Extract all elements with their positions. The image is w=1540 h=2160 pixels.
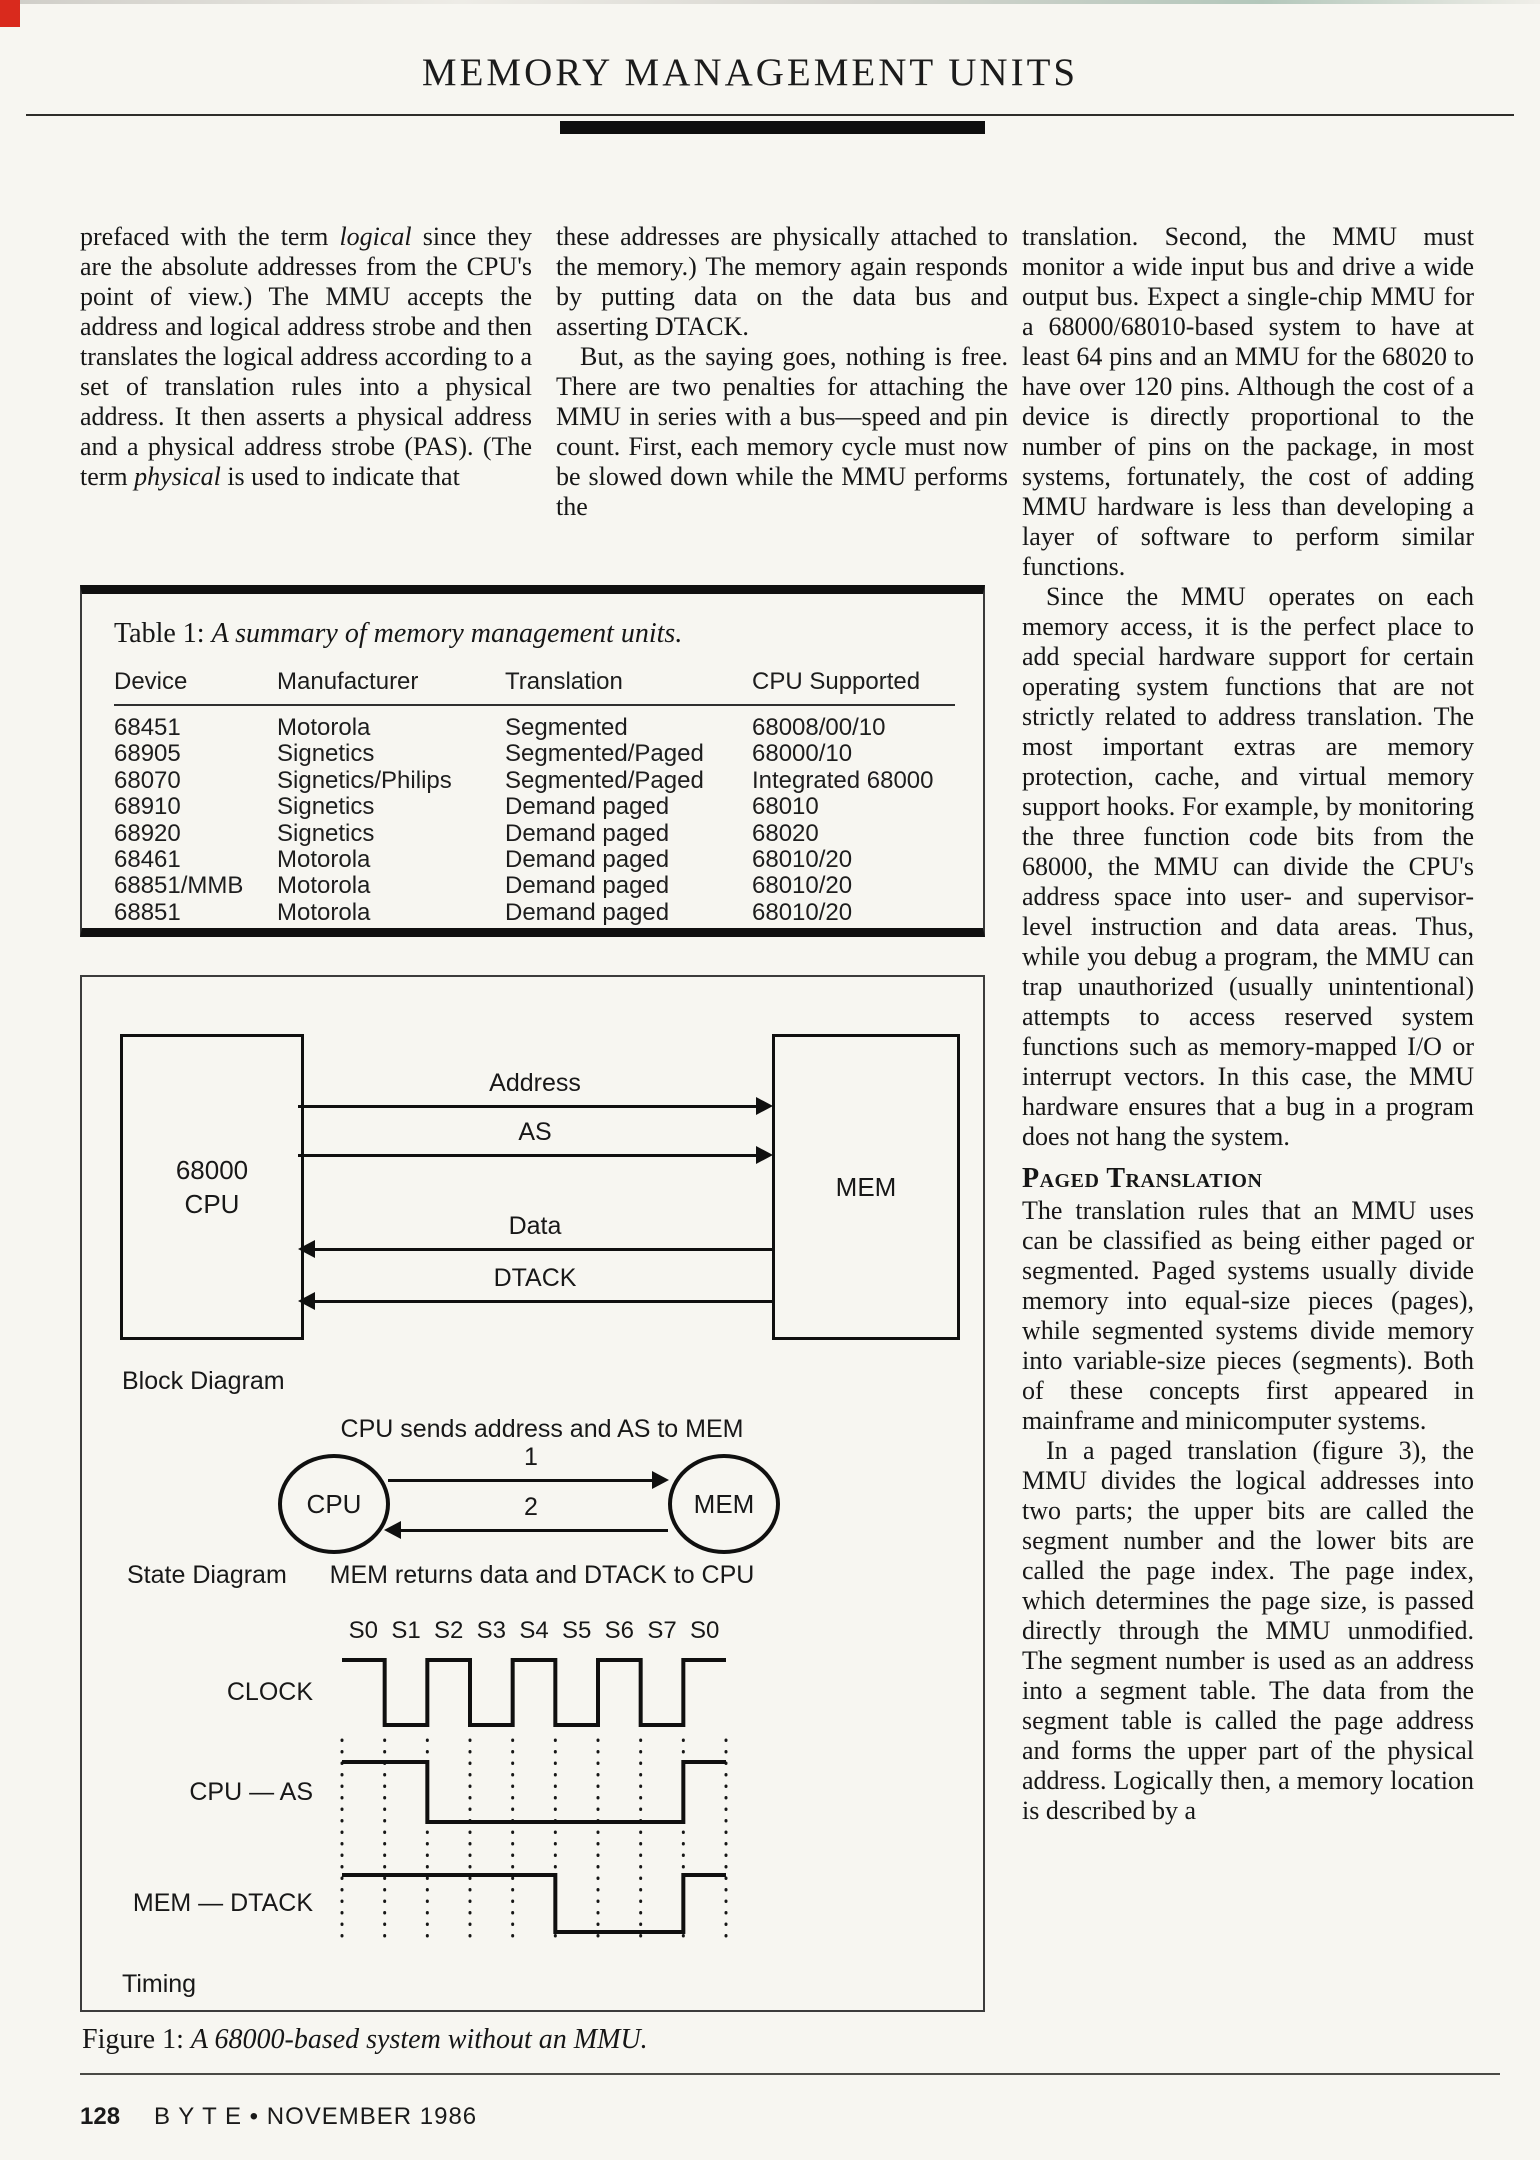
column-header-device: Device: [114, 668, 277, 696]
figure1-caption: Figure 1: A 68000-based system without a…: [82, 2024, 648, 2056]
signal-line-as: [298, 1154, 758, 1157]
magazine-name-date: B Y T E • NOVEMBER 1986: [154, 2103, 477, 2130]
cpu-label-line2: CPU: [185, 1187, 240, 1221]
block-cpu-box: 68000 CPU: [120, 1034, 304, 1340]
column-header-manufacturer: Manufacturer: [277, 668, 505, 696]
figure1-caption-italic: A 68000-based system without an MMU.: [191, 2024, 648, 2055]
italic-term: logical: [339, 222, 411, 251]
block-mem-box: MEM: [772, 1034, 960, 1340]
body-paragraph: translation. Second, the MMU must monito…: [1022, 222, 1474, 582]
table-row: 68910SigneticsDemand paged68010: [114, 794, 953, 820]
text-column-1: prefaced with the term logical since the…: [80, 222, 532, 492]
signal-label-dtack: DTACK: [494, 1264, 577, 1293]
timing-label: Timing: [122, 1970, 196, 1999]
table-cell: Segmented: [505, 715, 752, 741]
state-arrow2-line: [400, 1529, 668, 1532]
column-header-cpu-supported: CPU Supported: [752, 668, 953, 696]
body-paragraph: In a paged translation (figure 3), the M…: [1022, 1436, 1474, 1826]
timing-waveforms: [322, 1645, 742, 1955]
table-cell: Demand paged: [505, 873, 752, 899]
timing-waveform: [342, 1762, 726, 1822]
body-paragraph: The translation rules that an MMU uses c…: [1022, 1196, 1474, 1436]
column-header-translation: Translation: [505, 668, 752, 696]
header-rule: [26, 114, 1514, 116]
body-text: since they are the absolute addresses fr…: [80, 222, 532, 491]
page-title: MEMORY MANAGEMENT UNITS: [0, 50, 1500, 95]
table-cell: Signetics: [277, 821, 505, 847]
signal-label-address: Address: [489, 1069, 581, 1098]
table-cell: 68010/20: [752, 847, 953, 873]
table-cell: 68461: [114, 847, 277, 873]
footer-rule: [80, 2073, 1500, 2075]
table1-title-prefix: Table 1:: [114, 618, 212, 649]
timing-state-label: S4: [519, 1617, 548, 1645]
arrowhead-right-icon: [756, 1097, 773, 1115]
table-cell: Motorola: [277, 873, 505, 899]
magazine-page: MEMORY MANAGEMENT UNITS prefaced with th…: [0, 0, 1540, 2160]
table-cell: 68000/10: [752, 741, 953, 767]
timing-label-cpu-as: CPU — AS: [189, 1778, 313, 1807]
state-cpu-node: CPU: [278, 1454, 390, 1554]
timing-state-label: S5: [562, 1617, 591, 1645]
timing-state-label: S3: [477, 1617, 506, 1645]
table-cell: Motorola: [277, 847, 505, 873]
table-cell: Motorola: [277, 715, 505, 741]
timing-state-label: S7: [647, 1617, 676, 1645]
body-text: prefaced with the term: [80, 222, 339, 251]
table-cell: 68451: [114, 715, 277, 741]
figure1-caption-prefix: Figure 1:: [82, 2024, 191, 2055]
timing-state-label: S0: [349, 1617, 378, 1645]
timing-label-mem-dtack: MEM — DTACK: [133, 1889, 313, 1918]
arrowhead-right-icon: [652, 1471, 669, 1489]
table-cell: 68008/00/10: [752, 715, 953, 741]
table-row: 68905SigneticsSegmented/Paged68000/10: [114, 741, 953, 767]
page-number: 128: [80, 2103, 120, 2130]
table-cell: 68070: [114, 768, 277, 794]
text-column-2: these addresses are physically attached …: [556, 222, 1008, 522]
text-column-3: translation. Second, the MMU must monito…: [1022, 222, 1474, 1826]
state-mem-label: MEM: [694, 1489, 755, 1520]
state-top-caption: CPU sends address and AS to MEM: [341, 1415, 744, 1444]
table-cell: Integrated 68000: [752, 768, 953, 794]
arrowhead-right-icon: [756, 1146, 773, 1164]
scan-artifact-red-corner: [0, 0, 20, 27]
table-cell: 68851/MMB: [114, 873, 277, 899]
body-paragraph: But, as the saying goes, nothing is free…: [556, 342, 1008, 522]
table-cell: Signetics: [277, 794, 505, 820]
col1-paragraph: prefaced with the term logical since the…: [80, 222, 532, 492]
table-row: 68851MotorolaDemand paged68010/20: [114, 900, 953, 926]
table1-header-rule: [114, 704, 955, 706]
page-footer: 128B Y T E • NOVEMBER 1986: [80, 2103, 477, 2131]
table-cell: 68010: [752, 794, 953, 820]
table-cell: Signetics/Philips: [277, 768, 505, 794]
section-heading: Paged Translation: [1022, 1164, 1474, 1194]
table-cell: Demand paged: [505, 794, 752, 820]
timing-state-label: S1: [391, 1617, 420, 1645]
timing-waveform: [342, 1660, 726, 1725]
cpu-label-line1: 68000: [176, 1153, 248, 1187]
signal-label-data: Data: [509, 1212, 562, 1241]
state-mem-node: MEM: [668, 1454, 780, 1554]
timing-state-label: S6: [605, 1617, 634, 1645]
table-cell: 68905: [114, 741, 277, 767]
signal-line-dtack: [314, 1300, 772, 1303]
arrowhead-left-icon: [298, 1240, 315, 1258]
state-arrow1-label: 1: [524, 1443, 538, 1472]
body-text: is used to indicate that: [221, 462, 460, 491]
italic-term: physical: [134, 462, 221, 491]
state-cpu-label: CPU: [307, 1489, 362, 1520]
table-row: 68920SigneticsDemand paged68020: [114, 821, 953, 847]
mem-label: MEM: [836, 1170, 897, 1204]
state-diagram-label: State Diagram: [127, 1561, 287, 1590]
table-cell: 68910: [114, 794, 277, 820]
table1-box: Table 1: A summary of memory management …: [80, 585, 985, 937]
block-diagram-label: Block Diagram: [122, 1367, 285, 1396]
table-cell: 68920: [114, 821, 277, 847]
timing-state-label: S2: [434, 1617, 463, 1645]
table-cell: Signetics: [277, 741, 505, 767]
table1-header-row: Device Manufacturer Translation CPU Supp…: [114, 668, 953, 696]
table-cell: Demand paged: [505, 821, 752, 847]
timing-state-label: S0: [690, 1617, 719, 1645]
signal-line-data: [314, 1248, 772, 1251]
scan-artifact: [0, 0, 1540, 4]
state-arrow1-line: [388, 1479, 654, 1482]
table-cell: 68010/20: [752, 900, 953, 926]
state-arrow2-label: 2: [524, 1493, 538, 1522]
arrowhead-left-icon: [384, 1521, 401, 1539]
table-cell: Motorola: [277, 900, 505, 926]
table-cell: Demand paged: [505, 900, 752, 926]
timing-label-clock: CLOCK: [227, 1678, 313, 1707]
table-cell: 68010/20: [752, 873, 953, 899]
table1-title: Table 1: A summary of memory management …: [114, 618, 682, 650]
table-row: 68461MotorolaDemand paged68010/20: [114, 847, 953, 873]
table-row: 68851/MMBMotorolaDemand paged68010/20: [114, 873, 953, 899]
figure1-box: 68000 CPU MEM Address AS Data DTACK Bloc…: [80, 975, 985, 2012]
table-row: 68070Signetics/PhilipsSegmented/PagedInt…: [114, 768, 953, 794]
signal-label-as: AS: [518, 1118, 551, 1147]
table-row: 68451MotorolaSegmented68008/00/10: [114, 715, 953, 741]
arrowhead-left-icon: [298, 1292, 315, 1310]
table-cell: 68851: [114, 900, 277, 926]
table-body: 68451MotorolaSegmented68008/00/1068905Si…: [114, 715, 953, 926]
table1-title-italic: A summary of memory management units.: [212, 618, 683, 649]
timing-waveform: [342, 1875, 726, 1932]
table-cell: Segmented/Paged: [505, 768, 752, 794]
signal-line-address: [298, 1105, 758, 1108]
body-paragraph: Since the MMU operates on each memory ac…: [1022, 582, 1474, 1152]
table-cell: Demand paged: [505, 847, 752, 873]
table-cell: Segmented/Paged: [505, 741, 752, 767]
table-cell: 68020: [752, 821, 953, 847]
header-bar: [560, 121, 985, 134]
state-bottom-caption: MEM returns data and DTACK to CPU: [330, 1561, 755, 1590]
body-paragraph: these addresses are physically attached …: [556, 222, 1008, 342]
